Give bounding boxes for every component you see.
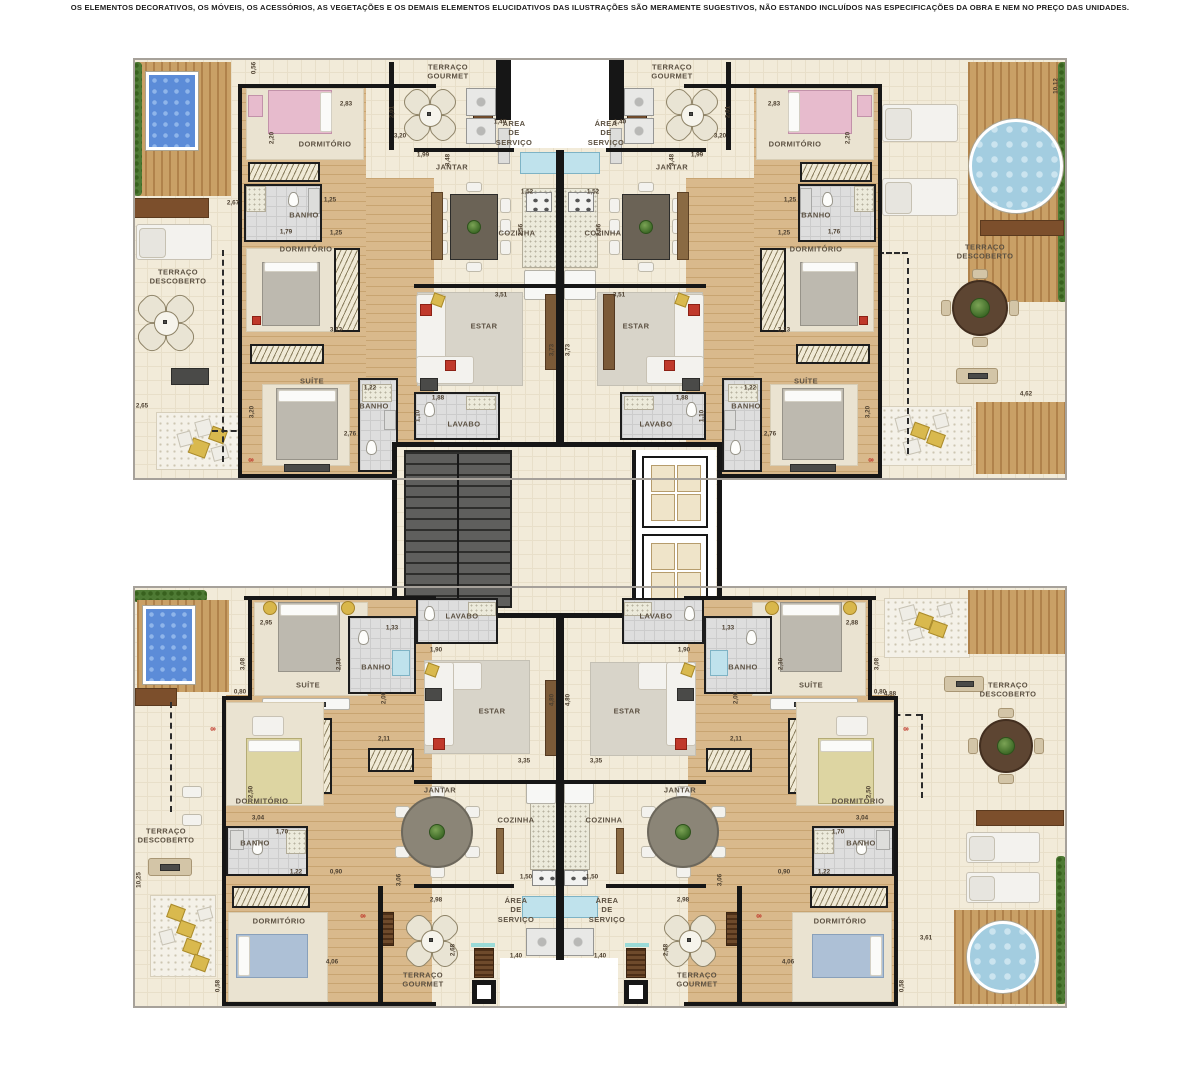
dimension-label: 1,90 xyxy=(430,647,442,654)
room-label: BANHO xyxy=(801,210,831,219)
dimension-label: 3,20 xyxy=(249,406,256,418)
room-label: TERRAÇO DESCOBERTO xyxy=(138,827,195,846)
room-label: ESTAR xyxy=(479,706,506,715)
dimension-label: 2,98 xyxy=(677,897,689,904)
dimension-label: 1,90 xyxy=(678,647,690,654)
dimension-label: 1,10 xyxy=(699,410,706,422)
room-label: TERRAÇO GOURMET xyxy=(651,63,692,82)
dimension-label: 1,25 xyxy=(330,230,342,237)
room-label: DORMITÓRIO xyxy=(299,139,352,148)
room-label: TERRAÇO GOURMET xyxy=(427,63,468,82)
dimension-label: 1,99 xyxy=(417,152,429,159)
room-label: BANHO xyxy=(731,401,761,410)
dimension-label: 0,90 xyxy=(330,869,342,876)
room-label: TERRAÇO DESCOBERTO xyxy=(980,681,1037,700)
dimension-label: 1,22 xyxy=(818,869,830,876)
room-label: DORMITÓRIO xyxy=(236,796,289,805)
dimension-label: 3,48 xyxy=(669,154,676,166)
dimension-label: 2,20 xyxy=(269,132,276,144)
dimension-label: 1,88 xyxy=(676,395,688,402)
dimension-label: 3,13 xyxy=(778,327,790,334)
dimension-label: 4,88 xyxy=(884,691,896,698)
dimension-label: 3,04 xyxy=(856,815,868,822)
dimension-label: 1,33 xyxy=(722,625,734,632)
dimension-label: 4,80 xyxy=(565,694,572,706)
dimension-label: 1,25 xyxy=(778,230,790,237)
dimension-label: 3,51 xyxy=(613,292,625,299)
room-label: DORMITÓRIO xyxy=(814,916,867,925)
dimension-label: 2,56 xyxy=(596,224,603,236)
room-label: TERRAÇO DESCOBERTO xyxy=(957,243,1014,262)
dimension-label: 1,79 xyxy=(280,229,292,236)
room-label: JANTAR xyxy=(424,785,456,794)
dimension-label: 1,99 xyxy=(691,152,703,159)
dimension-label: 1,33 xyxy=(386,625,398,632)
room-label: DORMITÓRIO xyxy=(769,139,822,148)
dimension-label: 2,30 xyxy=(336,658,343,670)
dimension-label: 4,06 xyxy=(326,959,338,966)
dimension-label: 2,01 xyxy=(389,106,396,118)
room-label: LAVABO xyxy=(640,419,673,428)
dimension-label: 3,06 xyxy=(396,874,403,886)
dimension-label: 2,88 xyxy=(846,620,858,627)
dimension-label: 3,20 xyxy=(714,133,726,140)
dimension-label: 4,80 xyxy=(549,694,556,706)
dimension-label: 1,40 xyxy=(510,953,522,960)
dimension-label: 1,40 xyxy=(594,953,606,960)
dimension-label: 1,22 xyxy=(364,385,376,392)
door-mark: 8 xyxy=(867,458,874,462)
room-label: DORMITÓRIO xyxy=(832,796,885,805)
room-label: ESTAR xyxy=(471,321,498,330)
dimension-label: 2,50 xyxy=(866,786,873,798)
dimension-label: 3,20 xyxy=(865,406,872,418)
dimension-label: 1,88 xyxy=(432,395,444,402)
dimension-label: 3,08 xyxy=(874,658,881,670)
dimension-label: 4,62 xyxy=(1020,391,1032,398)
dimension-label: 2,68 xyxy=(450,944,457,956)
room-label: ÁREA DE SERVIÇO xyxy=(498,896,534,924)
room-label: BANHO xyxy=(289,210,319,219)
room-label: SUÍTE xyxy=(296,680,320,689)
room-label: BANHO xyxy=(728,662,758,671)
dimension-label: 1,76 xyxy=(828,229,840,236)
door-mark: 8 xyxy=(902,727,909,731)
dimension-label: 3,73 xyxy=(549,344,556,356)
dimension-label: 1,22 xyxy=(290,869,302,876)
dimension-label: 2,67 xyxy=(227,200,239,207)
room-label: TERRAÇO GOURMET xyxy=(402,971,443,990)
dimension-label: 3,35 xyxy=(590,758,602,765)
dimension-label: 2,95 xyxy=(260,620,272,627)
dimension-label: 4,06 xyxy=(782,959,794,966)
dimension-label: 3,51 xyxy=(495,292,507,299)
dimension-label: 3,06 xyxy=(717,874,724,886)
door-mark: 8 xyxy=(247,458,254,462)
dimension-label: 1,50 xyxy=(586,874,598,881)
room-label: ÁREA DE SERVIÇO xyxy=(589,896,625,924)
dimension-label: 3,20 xyxy=(394,133,406,140)
dimension-label: 0,90 xyxy=(778,869,790,876)
dimension-label: 1,70 xyxy=(832,829,844,836)
dimension-label: 2,01 xyxy=(725,106,732,118)
dimension-label: 3,73 xyxy=(565,344,572,356)
dimension-label: 1,25 xyxy=(784,197,796,204)
dimension-label: 2,50 xyxy=(248,786,255,798)
door-mark: 8 xyxy=(755,914,762,918)
dimension-label: 10,25 xyxy=(136,872,143,888)
dimension-label: 1,40 xyxy=(614,119,626,126)
dimension-label: 2,98 xyxy=(430,897,442,904)
dimension-label: 3,61 xyxy=(920,935,932,942)
dimension-label: 2,68 xyxy=(663,944,670,956)
dimension-label: 2,11 xyxy=(378,736,390,743)
dimension-label: 2,65 xyxy=(136,403,148,410)
dimension-label: 3,13 xyxy=(330,327,342,334)
room-label: DORMITÓRIO xyxy=(790,244,843,253)
door-mark: 8 xyxy=(359,914,366,918)
room-label: TERRAÇO DESCOBERTO xyxy=(150,268,207,287)
room-label: JANTAR xyxy=(664,785,696,794)
dimension-label: 1,50 xyxy=(520,874,532,881)
dimension-label: 3,35 xyxy=(518,758,530,765)
dimension-label: 10,12 xyxy=(1053,78,1060,94)
room-label: LAVABO xyxy=(640,611,673,620)
dimension-label: 1,70 xyxy=(276,829,288,836)
room-label: BANHO xyxy=(846,838,876,847)
room-label: DORMITÓRIO xyxy=(280,244,333,253)
room-label: SUÍTE xyxy=(794,376,818,385)
room-label: ESTAR xyxy=(614,706,641,715)
room-label: LAVABO xyxy=(448,419,481,428)
dimension-label: 2,56 xyxy=(518,224,525,236)
door-mark: 8 xyxy=(209,727,216,731)
room-label: ESTAR xyxy=(623,321,650,330)
room-label: BANHO xyxy=(361,662,391,671)
dimension-label: 2,83 xyxy=(340,101,352,108)
room-label: SUÍTE xyxy=(799,680,823,689)
room-label: JANTAR xyxy=(436,162,468,171)
room-label: BANHO xyxy=(240,838,270,847)
dimension-label: 1,52 xyxy=(521,189,533,196)
room-label: COZINHA xyxy=(585,228,622,237)
dimension-label: 1,25 xyxy=(324,197,336,204)
dimension-label: 0,58 xyxy=(899,980,906,992)
dimension-label: 2,76 xyxy=(764,431,776,438)
dimension-label: 2,11 xyxy=(730,736,742,743)
dimension-label: 2,00 xyxy=(381,692,388,704)
dimension-label: 1,22 xyxy=(744,385,756,392)
dimension-label: 2,83 xyxy=(768,101,780,108)
room-label: BANHO xyxy=(359,401,389,410)
floor-plan-page: OS ELEMENTOS DECORATIVOS, OS MÓVEIS, OS … xyxy=(0,0,1200,1070)
dimension-label: 3,04 xyxy=(252,815,264,822)
dimension-label: 2,00 xyxy=(733,692,740,704)
dimension-label: 1,40 xyxy=(494,119,506,126)
dimension-label: 1,52 xyxy=(587,189,599,196)
dimension-label: 0,56 xyxy=(251,62,258,74)
room-label: TERRAÇO GOURMET xyxy=(676,971,717,990)
room-label: SUÍTE xyxy=(300,376,324,385)
dimension-label: 2,20 xyxy=(845,132,852,144)
room-label: LAVABO xyxy=(446,611,479,620)
dimension-label: 0,58 xyxy=(215,980,222,992)
dimension-label: 0,80 xyxy=(234,689,246,696)
dimension-label: 3,08 xyxy=(240,658,247,670)
room-label: DORMITÓRIO xyxy=(253,916,306,925)
dimension-label: 1,10 xyxy=(415,410,422,422)
dimension-label: 2,76 xyxy=(344,431,356,438)
room-label: COZINHA xyxy=(498,815,535,824)
floor-plan: TERRAÇO DESCOBERTODORMITÓRIOBANHODORMITÓ… xyxy=(0,0,1200,1070)
room-label: COZINHA xyxy=(586,815,623,824)
dimension-label: 3,48 xyxy=(445,154,452,166)
dimension-label: 2,30 xyxy=(778,658,785,670)
